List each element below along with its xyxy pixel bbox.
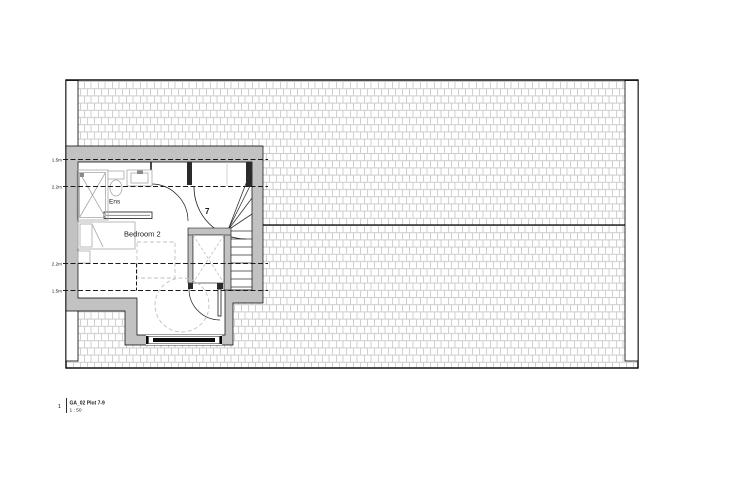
landing-wall-stub-left xyxy=(187,162,192,185)
room-label-ensuite: Ens xyxy=(109,199,121,206)
room-label-bedroom: Bedroom 2 xyxy=(124,230,161,239)
drawing-sheet: 1.5m 2.2m 2.2m 1.5m Bedroom 2 Ens 7 1 GA… xyxy=(0,0,743,490)
roof-verge-right xyxy=(625,81,638,362)
view-scale: 1 : 50 xyxy=(70,408,82,414)
stair-riser-count: 7 xyxy=(205,207,210,216)
headroom-label-2: 2.2m xyxy=(52,184,62,189)
view-title-block: 1 GA_02 Plot 7-9 1 : 50 xyxy=(58,398,105,414)
basin xyxy=(127,170,152,186)
shower-drain xyxy=(80,173,84,177)
headroom-label-3: 2.2m xyxy=(52,261,62,266)
door-leaf xyxy=(218,289,221,316)
dormer-window xyxy=(146,335,222,345)
headroom-label-1: 1.5m xyxy=(52,157,62,162)
basin-tap xyxy=(137,171,143,175)
headroom-label-4: 1.5m xyxy=(52,288,62,293)
floor-plan-canvas: 1.5m 2.2m 2.2m 1.5m Bedroom 2 Ens 7 1 GA… xyxy=(0,0,743,490)
view-number: 1 xyxy=(58,404,61,410)
view-name: GA_02 Plot 7-9 xyxy=(70,401,106,407)
